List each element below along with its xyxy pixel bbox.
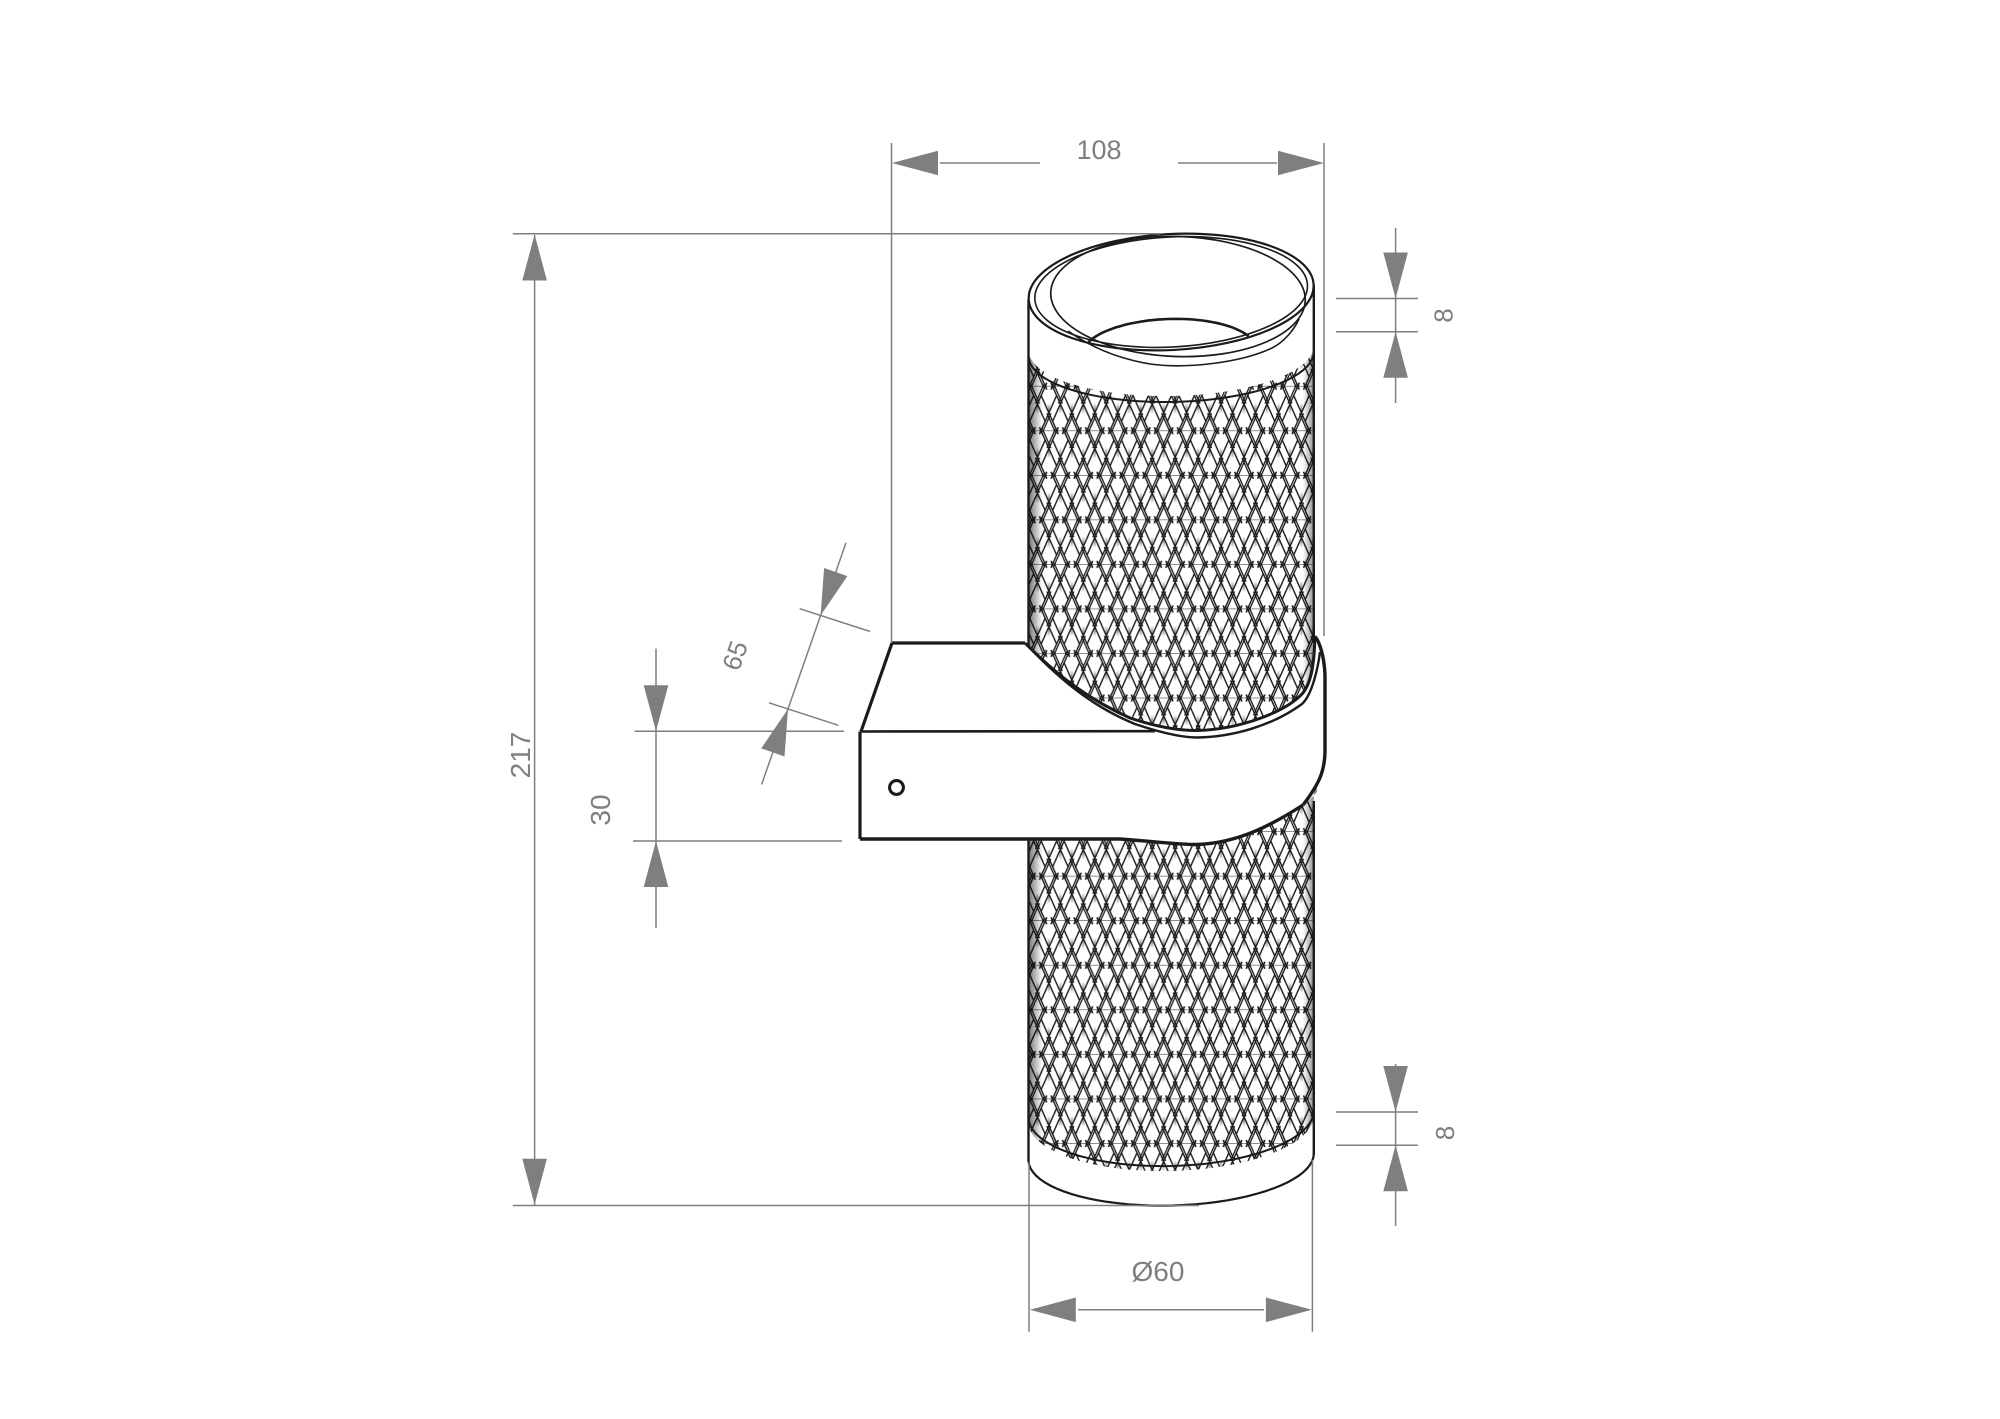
- svg-text:8: 8: [1430, 1126, 1460, 1140]
- svg-text:108: 108: [1076, 135, 1121, 165]
- svg-text:30: 30: [585, 794, 616, 825]
- svg-text:8: 8: [1429, 308, 1459, 322]
- svg-text:Ø60: Ø60: [1132, 1256, 1185, 1287]
- svg-text:217: 217: [505, 732, 536, 779]
